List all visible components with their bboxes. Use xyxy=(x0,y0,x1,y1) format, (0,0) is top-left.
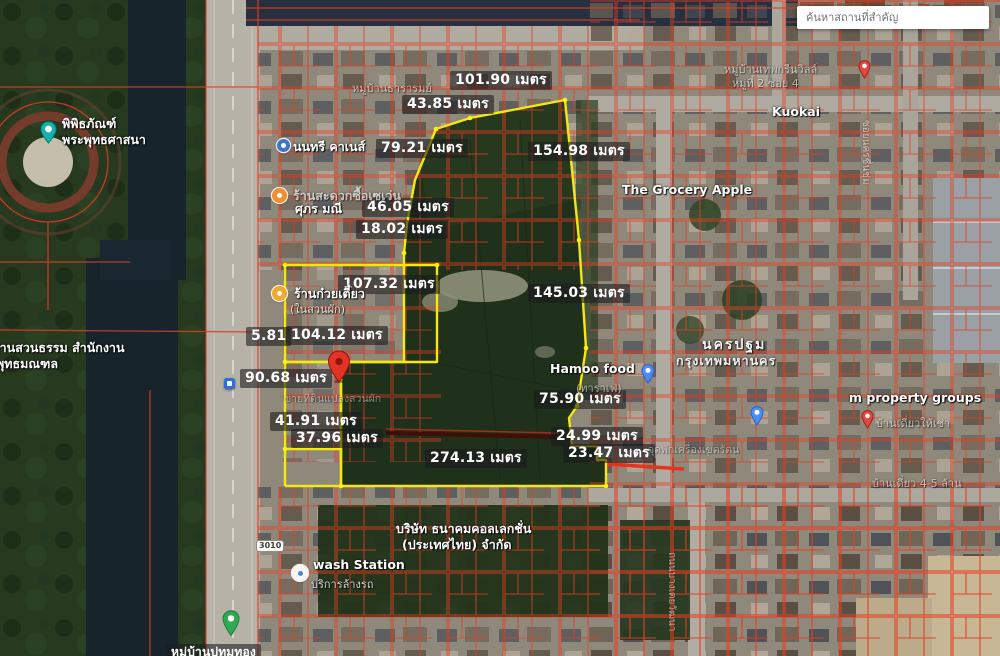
measure-label: 23.47 เมตร xyxy=(563,444,655,463)
carwash-icon[interactable] xyxy=(292,565,308,581)
convenience-store-icon[interactable] xyxy=(272,188,287,203)
location-pin-icon[interactable] xyxy=(327,350,351,388)
route-shield: 3010 xyxy=(256,540,284,552)
measure-label: 5.81 xyxy=(246,327,291,346)
carwash-icon-glyph xyxy=(298,571,303,576)
park-pin-icon[interactable] xyxy=(222,610,240,641)
cafe-icon[interactable] xyxy=(277,139,290,152)
poi-label-grocery: The Grocery Apple xyxy=(622,182,752,197)
poi-label-bottom-cut: หมู่บ้านปทุมทอง xyxy=(166,644,261,656)
measure-label: 79.21 เมตร xyxy=(376,139,468,158)
poi-label-property: m property groups xyxy=(849,390,981,405)
poi-label-cafe: นนทรี คาเนส์ xyxy=(293,137,365,157)
poi-label-company-sub: (ประเทศไทย) จำกัด xyxy=(402,535,511,555)
measure-label: 43.85 เมตร xyxy=(402,95,494,114)
poi-label-hamoo: Hamoo food xyxy=(550,361,635,376)
poi-pin-icon-red-top[interactable] xyxy=(858,60,871,83)
poi-label-museum-2: พระพุทธศาสนา xyxy=(62,130,146,150)
village-label-sub: หมู่ที่ 2 ซอย 4 xyxy=(732,74,799,92)
poi-label-hamoo-sub: (ทาราเฟ่) xyxy=(576,379,622,397)
measure-label: 274.13 เมตร xyxy=(425,449,527,468)
store-icon-glyph xyxy=(277,193,282,198)
measure-label: 104.12 เมตร xyxy=(286,326,388,345)
measure-label: 154.98 เมตร xyxy=(528,142,630,161)
poi-label-kuokai: Kuokai xyxy=(772,104,820,119)
poi-label-rattana: จุดพักเครื่องเขตรัตน xyxy=(648,441,739,458)
restaurant-icon-glyph xyxy=(277,291,282,296)
measure-label: 90.68 เมตร xyxy=(240,369,332,388)
poi-label-park-office-sub: พุทธมณฑล xyxy=(0,354,58,374)
street-label-vertical-2: ซอยนครชื่นชุ่ม xyxy=(858,120,873,185)
satellite-map: 101.90 เมตร 43.85 เมตร 79.21 เมตร 154.98… xyxy=(0,0,1000,656)
search-input[interactable] xyxy=(797,6,989,29)
transit-stop-icon[interactable] xyxy=(224,378,235,389)
shop-pin-icon-2[interactable] xyxy=(750,406,764,430)
measure-label: 37.96 เมตร xyxy=(291,429,383,448)
museum-pin-icon[interactable] xyxy=(40,121,57,148)
poi-pin-icon-red[interactable] xyxy=(861,410,874,433)
poi-label-property-sub: บ้านเดี่ยวให้เช่า xyxy=(876,414,950,432)
poi-label-washstation: wash Station xyxy=(313,557,405,572)
search-bar xyxy=(797,6,989,29)
street-label-vertical-1: ถนนบางเตยวัฒนา xyxy=(664,552,679,631)
village-label-top: หมู่บ้านธารารมย์ xyxy=(352,79,432,97)
measure-label: 101.90 เมตร xyxy=(450,71,552,90)
measure-label: 145.03 เมตร xyxy=(528,284,630,303)
poi-label-restaurant-sub: (ในสวนผัก) xyxy=(290,300,345,318)
measure-label: 18.02 เมตร xyxy=(356,220,448,239)
poi-label-suporn: ศุภร มณี xyxy=(295,199,342,219)
restaurant-icon[interactable] xyxy=(272,286,287,301)
transit-icon-glyph xyxy=(227,381,232,386)
shop-pin-icon-1[interactable] xyxy=(641,364,655,388)
pin-caption: ขายที่ดินแปลงสวนผัก xyxy=(284,390,381,407)
cafe-icon-glyph xyxy=(281,143,286,148)
map-canvas[interactable] xyxy=(0,0,1000,656)
province-label-bangkok: กรุงเทพมหานคร xyxy=(676,351,776,371)
poi-label-house: บ้านเดี่ยว 4-5 ล้าน xyxy=(872,474,962,492)
poi-label-washstation-sub: บริการล้างรถ xyxy=(311,575,374,593)
